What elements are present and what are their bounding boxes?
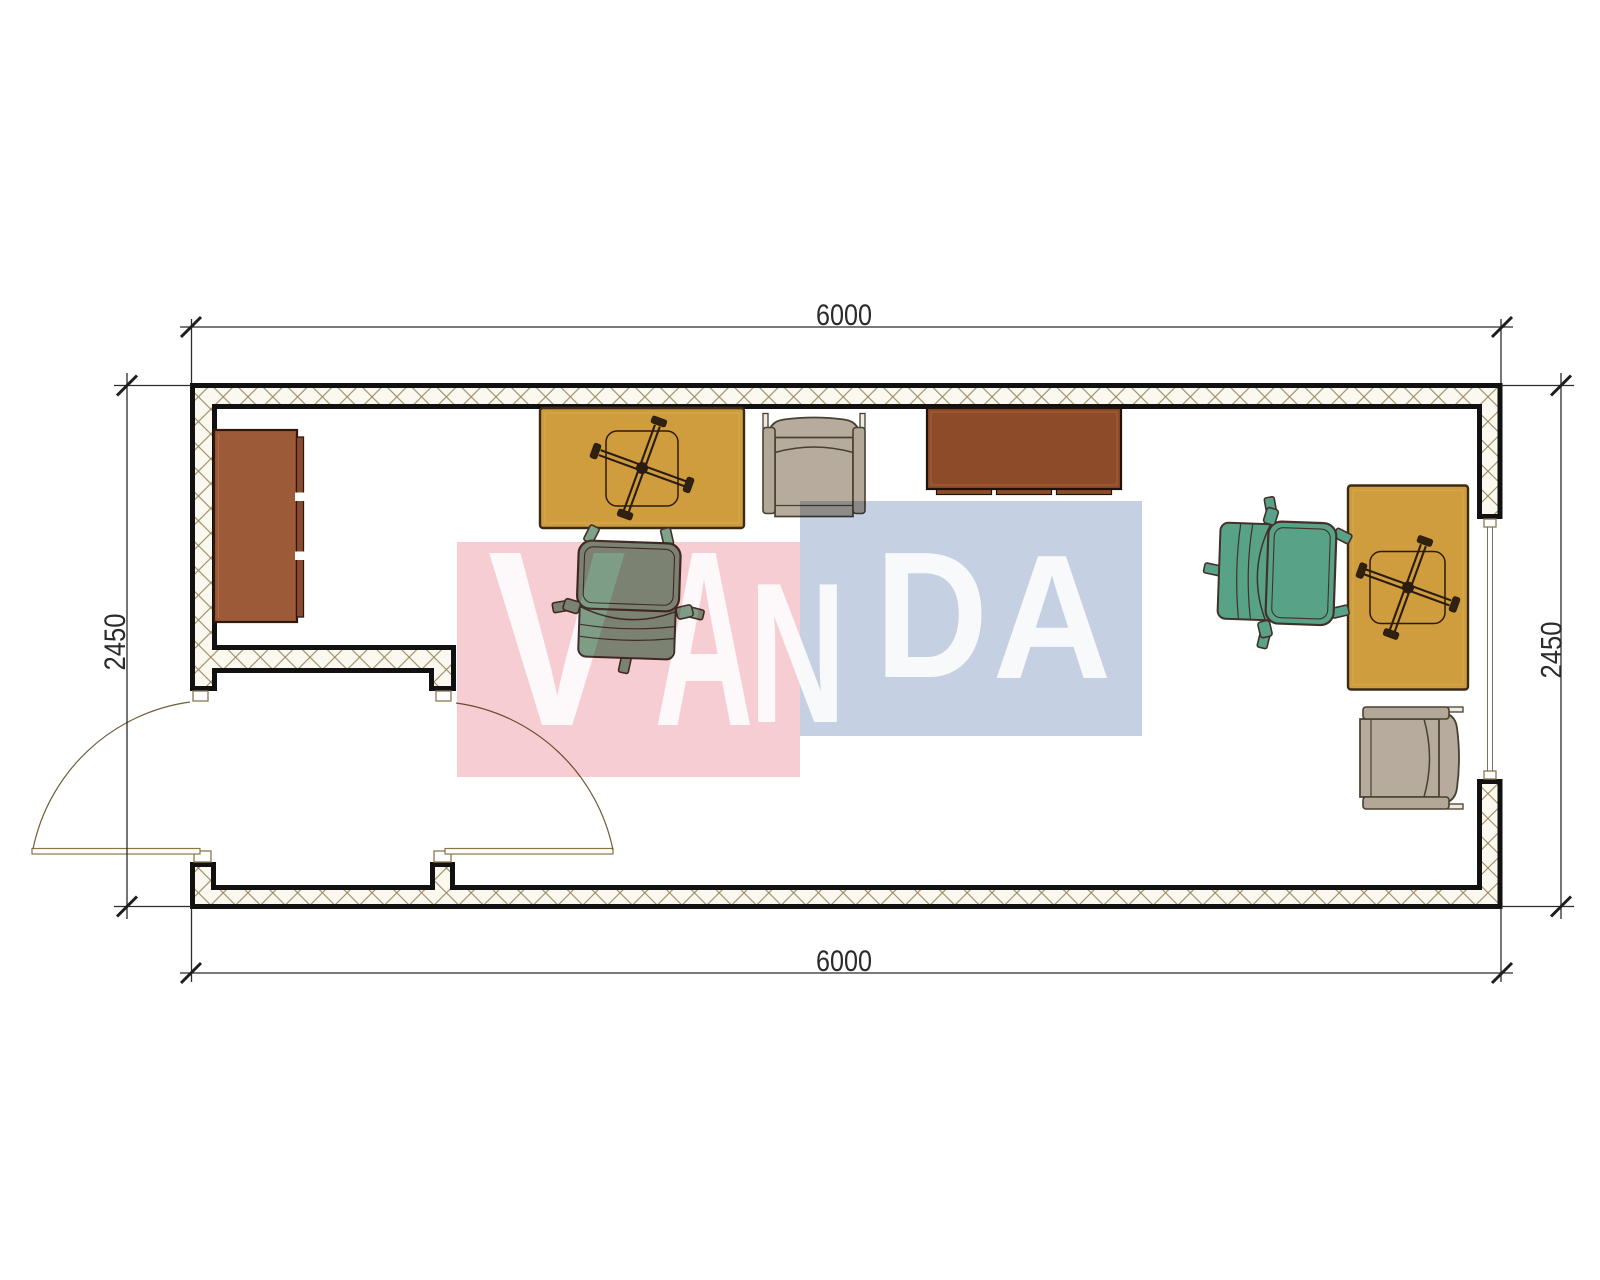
svg-text:2450: 2450 (1536, 622, 1569, 679)
svg-text:6000: 6000 (816, 299, 872, 332)
svg-text:6000: 6000 (816, 945, 872, 978)
svg-text:2450: 2450 (99, 614, 132, 671)
